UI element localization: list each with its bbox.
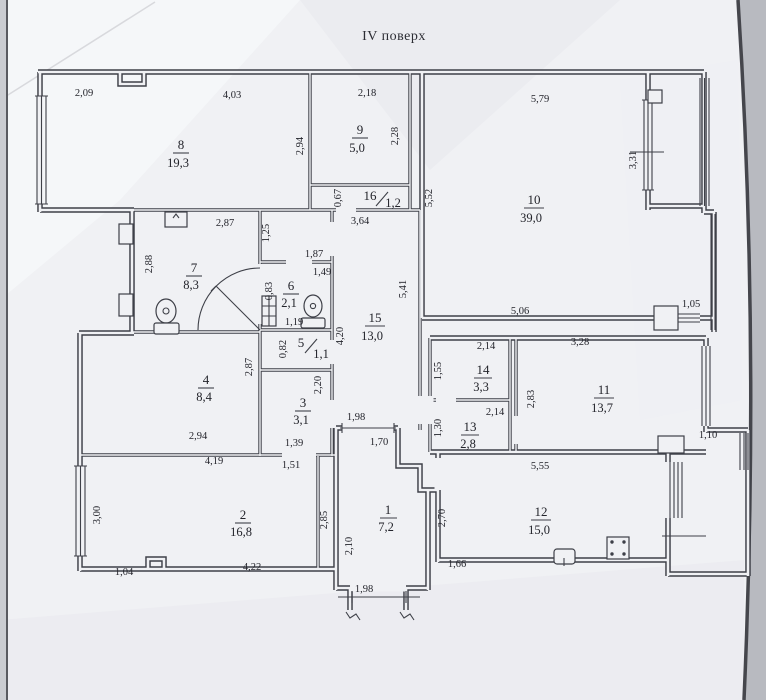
- dimension-label: 2,09: [75, 88, 93, 99]
- dimension-label: 5,52: [424, 189, 435, 207]
- dimension-label: 3,31: [628, 151, 639, 169]
- dimension-label: 1,19: [285, 317, 303, 328]
- column-dot: [622, 540, 625, 543]
- room-number: 13: [464, 419, 477, 434]
- plan-title: IV поверх: [362, 29, 426, 44]
- dimension-label: 2,28: [390, 127, 401, 145]
- dimension-label: 2,18: [358, 88, 376, 99]
- room-number: 3: [300, 395, 307, 410]
- dimension-label: 1,98: [355, 584, 373, 595]
- dimension-label: 2,88: [144, 255, 155, 273]
- room-area: 1,1: [313, 347, 329, 361]
- dimension-label: 1,70: [370, 437, 388, 448]
- room-area: 7,2: [378, 520, 394, 534]
- dimension-label: 1,98: [347, 412, 365, 423]
- window-room8: [35, 96, 48, 204]
- dimension-label: 1,04: [115, 567, 134, 578]
- room-area: 15,0: [528, 523, 550, 537]
- dimension-label: 2,14: [477, 341, 496, 352]
- room-area: 39,0: [520, 211, 542, 225]
- window-room2: [74, 466, 87, 556]
- column-icon: [607, 537, 629, 559]
- dimension-label: 3,64: [351, 216, 370, 227]
- dimension-label: 2,14: [486, 407, 505, 418]
- dimension-label: 2,70: [437, 509, 448, 527]
- dimension-label: 5,06: [511, 306, 529, 317]
- room-number: 4: [203, 372, 210, 387]
- room-number: 5: [298, 335, 305, 350]
- room-number: 10: [528, 192, 541, 207]
- room-area: 2,1: [281, 296, 297, 310]
- dimension-label: 1,25: [261, 224, 272, 242]
- photo-of-floor-plan: IV поверх: [0, 0, 766, 700]
- room-area: 5,0: [349, 141, 365, 155]
- pilaster: [658, 436, 684, 453]
- dimension-label: 2,94: [295, 136, 306, 155]
- room-number: 9: [357, 122, 364, 137]
- room-area: 13,0: [361, 329, 383, 343]
- toilet-icon: [156, 299, 176, 323]
- room-area: 2,8: [460, 437, 476, 451]
- room-number: 15: [369, 310, 382, 325]
- room-number: 12: [535, 504, 548, 519]
- room-area: 1,2: [385, 196, 401, 210]
- dimension-label: 0,67: [333, 189, 344, 207]
- room-number: 2: [240, 507, 247, 522]
- window-room10: [642, 100, 654, 190]
- dimension-label: 2,10: [344, 537, 355, 555]
- dimension-label: 0,82: [278, 340, 289, 358]
- dimension-label: 4,20: [335, 327, 346, 345]
- paper-shade-right: [620, 60, 742, 420]
- pilaster: [648, 90, 662, 103]
- dimension-label: 1,87: [305, 249, 323, 260]
- room-area: 3,1: [293, 413, 309, 427]
- dimension-label: 2,85: [319, 511, 330, 529]
- pilaster: [654, 306, 678, 330]
- dimension-label: 1,51: [282, 460, 300, 471]
- room-area: 19,3: [167, 156, 189, 170]
- dimension-label: 1,66: [448, 559, 466, 570]
- room-area: 8,4: [196, 390, 212, 404]
- room-area: 8,3: [183, 278, 199, 292]
- room-number: 14: [477, 362, 491, 377]
- dimension-label: 4,22: [243, 562, 261, 573]
- dimension-label: 5,55: [531, 461, 549, 472]
- dimension-label: 0,83: [264, 282, 275, 300]
- floor-plan-svg: IV поверх: [0, 0, 766, 700]
- room-number: 7: [191, 260, 198, 275]
- room-number: 11: [598, 382, 611, 397]
- dimension-label: 5,41: [398, 280, 409, 298]
- dimension-label: 2,94: [189, 431, 208, 442]
- room-number: 8: [178, 137, 185, 152]
- dimension-label: 2,20: [313, 376, 324, 394]
- column-dot: [610, 552, 613, 555]
- toilet-tank: [154, 323, 179, 334]
- room-area: 13,7: [591, 401, 613, 415]
- toilet-icon: [304, 295, 322, 317]
- toilet-tank: [301, 318, 325, 328]
- photo-left-margin: [0, 0, 6, 700]
- dimension-label: 1,30: [433, 419, 444, 437]
- dimension-label: 1,39: [285, 438, 303, 449]
- room-area: 16,8: [230, 525, 252, 539]
- dimension-label: 1,10: [699, 430, 717, 441]
- dimension-label: 4,03: [223, 90, 241, 101]
- dimension-label: 3,00: [92, 506, 103, 524]
- dimension-label: 5,79: [531, 94, 549, 105]
- dimension-label: 3,28: [571, 337, 589, 348]
- dimension-label: 1,49: [313, 267, 331, 278]
- duct-icon: [119, 224, 133, 244]
- room-number: 1: [385, 502, 392, 517]
- dimension-label: 2,87: [216, 218, 234, 229]
- room-number: 6: [288, 278, 295, 293]
- column-dot: [622, 552, 625, 555]
- dimension-label: 4,19: [205, 456, 223, 467]
- dimension-label: 1,05: [682, 299, 700, 310]
- dimension-label: 2,87: [244, 358, 255, 376]
- room-number: 16: [364, 188, 378, 203]
- room-area: 3,3: [473, 380, 489, 394]
- duct-icon: [119, 294, 133, 316]
- dimension-label: 2,83: [526, 390, 537, 408]
- dimension-label: 1,55: [433, 362, 444, 380]
- column-dot: [610, 540, 613, 543]
